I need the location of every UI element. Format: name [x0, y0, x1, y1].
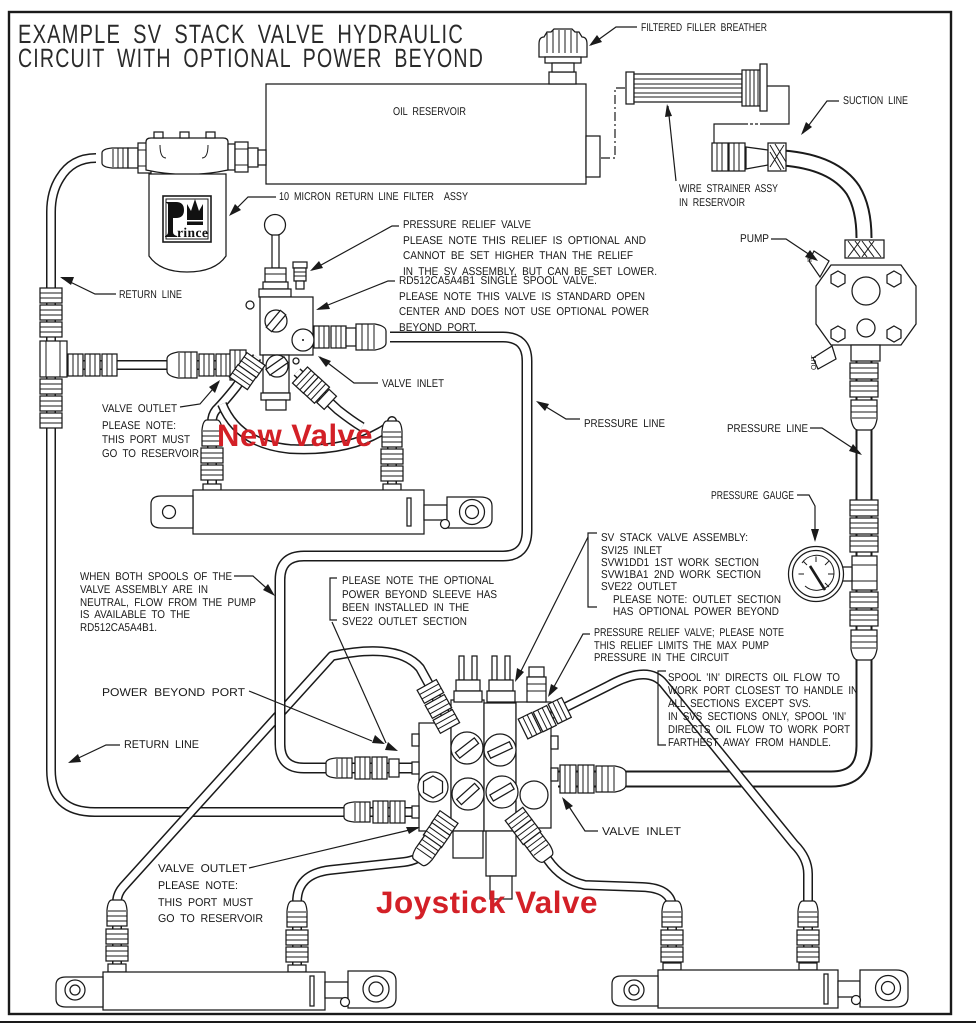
svg-text:CENTER AND DOES NOT USE OPTION: CENTER AND DOES NOT USE OPTIONAL POWER	[399, 306, 649, 318]
svg-text:THIS PORT MUST: THIS PORT MUST	[158, 897, 253, 909]
svg-text:WHEN BOTH SPOOLS OF THE: WHEN BOTH SPOOLS OF THE	[80, 571, 232, 583]
svg-text:WORK PORT CLOSEST TO HANDLE IN: WORK PORT CLOSEST TO HANDLE IN	[668, 685, 858, 697]
svg-text:OIL RESERVOIR: OIL RESERVOIR	[393, 106, 466, 118]
svg-text:ALL SECTIONS EXCEPT SVS.: ALL SECTIONS EXCEPT SVS.	[668, 698, 811, 710]
svg-text:SUCTION LINE: SUCTION LINE	[843, 95, 908, 107]
svg-text:RD512CA5A4B1 SINGLE SPOOL VALV: RD512CA5A4B1 SINGLE SPOOL VALVE.	[399, 275, 597, 287]
svg-text:PRESSURE RELIEF VALVE: PRESSURE RELIEF VALVE	[403, 219, 531, 231]
svg-text:PUMP: PUMP	[740, 233, 769, 245]
svg-text:WIRE STRAINER ASSY: WIRE STRAINER ASSY	[679, 183, 778, 195]
svg-text:PRESSURE LINE: PRESSURE LINE	[727, 423, 808, 435]
svg-text:VALVE OUTLET: VALVE OUTLET	[102, 403, 177, 415]
svg-text:VALVE INLET: VALVE INLET	[382, 378, 444, 390]
svg-text:POWER BEYOND PORT: POWER BEYOND PORT	[102, 687, 245, 699]
svg-text:SVI25 INLET: SVI25 INLET	[601, 545, 662, 557]
svg-text:SPOOL 'IN' DIRECTS OIL FLOW TO: SPOOL 'IN' DIRECTS OIL FLOW TO	[668, 672, 840, 684]
svg-text:PLEASE NOTE THIS VALVE IS STAN: PLEASE NOTE THIS VALVE IS STANDARD OPEN	[399, 291, 645, 303]
svg-text:NEUTRAL, FLOW FROM THE PUMP: NEUTRAL, FLOW FROM THE PUMP	[80, 597, 256, 609]
svg-text:VALVE ASSEMBLY ARE IN: VALVE ASSEMBLY ARE IN	[80, 584, 208, 596]
svg-text:CANNOT BE SET HIGHER THAN THE: CANNOT BE SET HIGHER THAN THE RELIEF	[403, 250, 633, 262]
svg-text:PLEASE NOTE THIS RELIEF IS OPT: PLEASE NOTE THIS RELIEF IS OPTIONAL AND	[403, 235, 646, 247]
svg-text:CIRCUIT WITH OPTIONAL POWER BE: CIRCUIT WITH OPTIONAL POWER BEYOND	[18, 43, 484, 73]
svg-text:GO TO RESERVOIR: GO TO RESERVOIR	[102, 448, 199, 460]
svg-text:SVE22 OUTLET: SVE22 OUTLET	[601, 581, 677, 593]
svg-text:SVE22 OUTLET SECTION: SVE22 OUTLET SECTION	[342, 616, 467, 628]
svg-text:PRESSURE GAUGE: PRESSURE GAUGE	[711, 490, 794, 502]
svg-text:PLEASE NOTE THE OPTIONAL: PLEASE NOTE THE OPTIONAL	[342, 575, 494, 587]
svg-text:RETURN LINE: RETURN LINE	[119, 289, 182, 301]
svg-text:IS AVAILABLE TO THE: IS AVAILABLE TO THE	[80, 609, 190, 621]
svg-text:THIS RELIEF LIMITS THE MAX PUM: THIS RELIEF LIMITS THE MAX PUMP	[594, 640, 769, 652]
svg-text:SVW1DD1 1ST WORK SECTION: SVW1DD1 1ST WORK SECTION	[601, 557, 759, 569]
svg-text:POWER BEYOND SLEEVE HAS: POWER BEYOND SLEEVE HAS	[342, 589, 497, 601]
svg-text:IN RESERVOIR: IN RESERVOIR	[679, 197, 745, 209]
svg-text:RD512CA5A4B1.: RD512CA5A4B1.	[80, 622, 157, 634]
svg-text:FARTHEST AWAY FROM HANDLE.: FARTHEST AWAY FROM HANDLE.	[668, 737, 831, 749]
svg-text:FILTERED FILLER BREATHER: FILTERED FILLER BREATHER	[641, 22, 767, 34]
svg-text:SV STACK VALVE ASSEMBLY:: SV STACK VALVE ASSEMBLY:	[601, 532, 748, 544]
svg-text:SVW1BA1 2ND WORK SECTION: SVW1BA1 2ND WORK SECTION	[601, 569, 761, 581]
svg-text:PLEASE NOTE:: PLEASE NOTE:	[102, 420, 176, 432]
svg-text:THIS PORT MUST: THIS PORT MUST	[102, 434, 190, 446]
svg-text:PLEASE NOTE: OUTLET SECTION: PLEASE NOTE: OUTLET SECTION	[613, 594, 781, 606]
svg-text:VALVE INLET: VALVE INLET	[602, 826, 681, 838]
svg-text:IN SVS SECTIONS ONLY, SPOOL 'I: IN SVS SECTIONS ONLY, SPOOL 'IN'	[668, 711, 846, 723]
svg-text:10 MICRON RETURN LINE FILTER: 10 MICRON RETURN LINE FILTER ASSY	[279, 191, 468, 203]
svg-text:PLEASE NOTE:: PLEASE NOTE:	[158, 880, 238, 892]
svg-text:OUT: OUT	[811, 355, 818, 371]
svg-text:VALVE OUTLET: VALVE OUTLET	[158, 863, 247, 875]
svg-text:PRESSURE LINE: PRESSURE LINE	[584, 418, 665, 430]
svg-text:PRESSURE RELIEF VALVE; PLEASE: PRESSURE RELIEF VALVE; PLEASE NOTE	[594, 627, 784, 639]
svg-text:BEEN INSTALLED IN THE: BEEN INSTALLED IN THE	[342, 602, 469, 614]
svg-text:DIRECTS OIL FLOW TO WORK PORT: DIRECTS OIL FLOW TO WORK PORT	[668, 724, 850, 736]
svg-text:RETURN LINE: RETURN LINE	[124, 739, 199, 751]
svg-text:Joystick Valve: Joystick Valve	[376, 885, 598, 920]
svg-text:HAS OPTIONAL POWER BEYOND: HAS OPTIONAL POWER BEYOND	[613, 606, 779, 618]
svg-text:BEYOND PORT.: BEYOND PORT.	[399, 322, 477, 334]
svg-text:GO TO RESERVOIR: GO TO RESERVOIR	[158, 913, 263, 925]
svg-text:PRESSURE IN THE CIRCUIT: PRESSURE IN THE CIRCUIT	[594, 652, 729, 664]
svg-text:New Valve: New Valve	[217, 418, 373, 453]
svg-text:rince: rince	[177, 225, 208, 240]
